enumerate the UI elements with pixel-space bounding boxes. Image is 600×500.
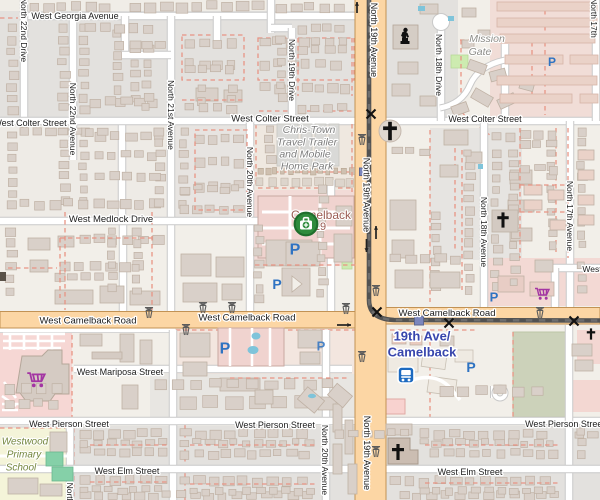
svg-text:P: P [290,242,301,259]
svg-text:P: P [317,339,326,354]
svg-text:North 21st Avenue: North 21st Avenue [166,80,176,150]
svg-text:Mission: Mission [469,33,505,45]
svg-text:West Medlock Drive: West Medlock Drive [69,214,153,225]
svg-text:West Colter Street: West Colter Street [448,114,522,124]
svg-text:Chris-Town: Chris-Town [283,124,336,136]
svg-text:School: School [6,463,37,474]
svg-text:North 19th Avenue: North 19th Avenue [362,158,372,232]
svg-text:West Camelback Road: West Camelback Road [199,313,296,324]
svg-text:and Mobile: and Mobile [279,149,331,161]
svg-text:North 17th Avenue: North 17th Avenue [565,181,575,252]
svg-text:P: P [466,359,475,375]
svg-text:West Colter Street: West Colter Street [0,118,67,128]
svg-text:North 22nd Drive: North 22nd Drive [19,0,29,62]
svg-text:North 19th Drive: North 19th Drive [287,39,297,101]
svg-text:West Camelback Road: West Camelback Road [399,308,496,319]
svg-text:Camelback: Camelback [388,345,457,360]
svg-text:West Elm Street: West Elm Street [438,467,503,477]
svg-text:West Mariposa Street: West Mariposa Street [77,367,164,377]
svg-text:Gate: Gate [469,46,492,58]
svg-text:North: North [65,483,75,500]
svg-text:19th Ave/: 19th Ave/ [394,329,451,344]
svg-text:P: P [490,290,499,305]
svg-text:North 19th Avenue: North 19th Avenue [369,3,379,77]
svg-text:North 20th Avenue: North 20th Avenue [320,425,330,496]
svg-text:Westwood: Westwood [2,437,49,448]
svg-text:West Georgia Avenue: West Georgia Avenue [31,11,118,21]
svg-text:Home Park: Home Park [281,161,334,173]
svg-text:P: P [548,55,556,69]
svg-text:North 17th: North 17th [589,0,599,38]
svg-text:West Pierson Street: West Pierson Street [525,419,600,429]
svg-text:North 19th Avenue: North 19th Avenue [362,416,372,490]
svg-text:West Pierson Street: West Pierson Street [29,419,109,429]
svg-text:North 20th Avenue: North 20th Avenue [245,147,255,218]
svg-text:P: P [220,341,231,358]
svg-text:North 18th Avenue: North 18th Avenue [479,197,489,268]
svg-text:West Pierson Street: West Pierson Street [235,420,315,430]
svg-text:P: P [272,276,281,292]
svg-text:West Colter Street: West Colter Street [231,114,309,125]
svg-text:West: West [582,264,600,274]
svg-text:Primary: Primary [7,450,42,461]
svg-text:North 18th Drive: North 18th Drive [434,34,444,96]
svg-text:West Elm Street: West Elm Street [95,466,160,476]
svg-text:Travel Trailer: Travel Trailer [277,137,338,149]
svg-text:North 22nd Avenue: North 22nd Avenue [68,83,78,156]
svg-text:West Camelback Road: West Camelback Road [40,316,137,327]
